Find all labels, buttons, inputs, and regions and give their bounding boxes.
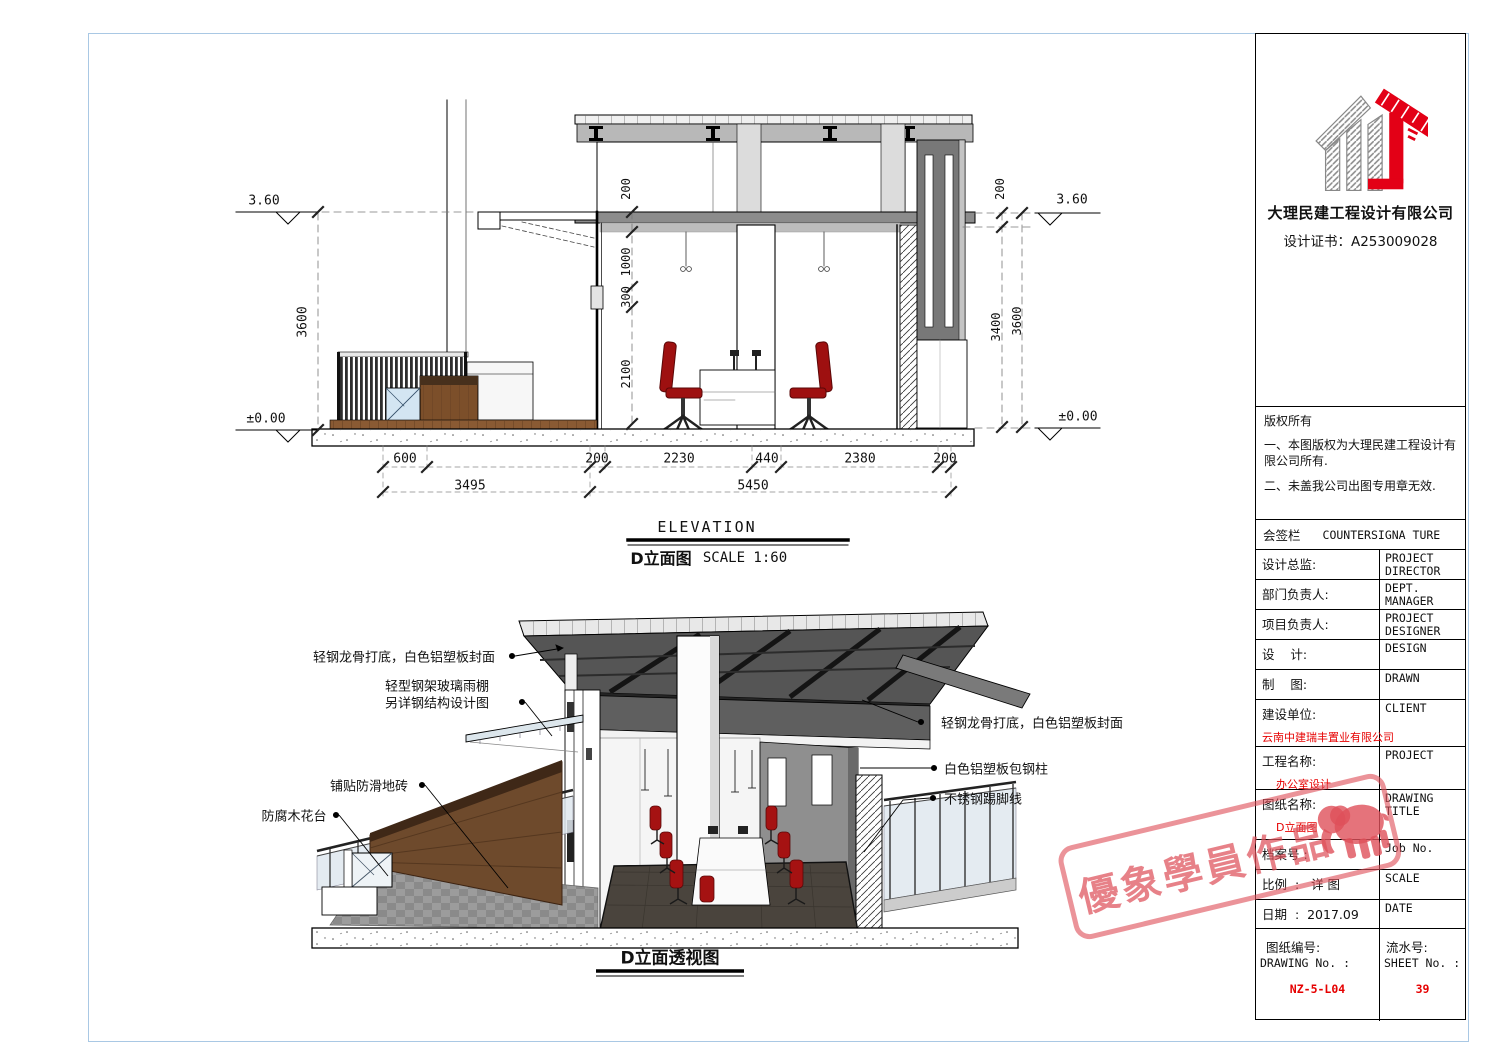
dim-2230: 2230: [663, 452, 694, 467]
table-row: 图纸名称:D立面图 DRAWING TITLE: [1256, 789, 1465, 839]
dim-5450: 5450: [737, 479, 768, 494]
table-row: 工程名称:办公室设计 PROJECT: [1256, 746, 1465, 789]
row-label: 项目负责人:: [1256, 610, 1380, 639]
office-chair: [789, 342, 833, 433]
level-label-ground-right: ±0.00: [1058, 410, 1097, 425]
row-label-en: DATE: [1380, 900, 1465, 928]
row-label: 图纸名称:D立面图: [1256, 790, 1380, 839]
table-row: 比例 : 详 图 SCALE: [1256, 869, 1465, 899]
dim-3600-right: 3600: [1010, 307, 1024, 336]
row-label: 比例 : 详 图: [1256, 870, 1380, 899]
dim-3400: 3400: [989, 313, 1003, 342]
perspective-title: D立面透视图: [620, 944, 719, 969]
sheet-no-cn: 流水号:: [1380, 937, 1465, 956]
copyright-section: 版权所有 一、本图版权为大理民建工程设计有限公司所有. 二、未盖我公司出图专用章…: [1256, 406, 1465, 519]
dim-600: 600: [393, 452, 416, 467]
dim-200-right: 200: [993, 178, 1007, 200]
row-label: 部门负责人:: [1256, 580, 1380, 609]
copyright-title: 版权所有: [1264, 413, 1457, 429]
drawing-sheet: 3.60 3.60 ±0.00 ±0.00 3600 200 1000 300 …: [0, 0, 1500, 1061]
dim-200-b: 200: [933, 452, 956, 467]
drawing-title-value: D立面图: [1276, 819, 1379, 835]
row-label-en: SCALE: [1380, 870, 1465, 899]
drawing-no-en: DRAWING No. :: [1256, 956, 1379, 970]
row-label: 设 计:: [1256, 640, 1380, 669]
company-logo: [1308, 82, 1428, 194]
row-label: 制 图:: [1256, 670, 1380, 699]
dim-440: 440: [755, 452, 778, 467]
elevation-scale: SCALE 1:60: [703, 550, 787, 566]
row-label-en: DEPT. MANAGER: [1380, 580, 1465, 609]
row-label: 设计总监:: [1256, 550, 1380, 579]
level-label-top-right: 3.60: [1056, 193, 1087, 208]
dim-2100: 2100: [619, 360, 633, 389]
table-row: 日期 : 2017.09 DATE: [1256, 899, 1465, 928]
sheet-no-value: 39: [1380, 982, 1465, 996]
office-chair: [659, 342, 703, 433]
drawing-no-value: NZ-5-L04: [1256, 982, 1379, 996]
label-floor-tile: 铺贴防滑地砖: [330, 776, 408, 795]
client-name: 云南中建瑞丰置业有限公司: [1262, 729, 1379, 745]
row-label-en: DRAWING TITLE: [1380, 790, 1465, 839]
drawing-no-cn: 图纸编号:: [1256, 937, 1379, 956]
row-label-en: PROJECT DIRECTOR: [1380, 550, 1465, 579]
table-row: 建设单位:云南中建瑞丰置业有限公司 CLIENT: [1256, 699, 1465, 746]
row-label: 工程名称:办公室设计: [1256, 747, 1380, 789]
table-row: 制 图: DRAWN: [1256, 669, 1465, 699]
label-column-clad: 白色铝塑板包钢柱: [944, 759, 1048, 778]
level-label-top-left: 3.60: [248, 194, 279, 209]
row-label-en: CLIENT: [1380, 700, 1465, 746]
label-roof-right: 轻钢龙骨打底，白色铝塑板封面: [941, 713, 1123, 732]
row-label-en: PROJECT DESIGNER: [1380, 610, 1465, 639]
row-label: 建设单位:云南中建瑞丰置业有限公司: [1256, 700, 1380, 746]
label-planter: 防腐木花台: [261, 806, 326, 825]
drawing-number-row: 图纸编号: DRAWING No. : NZ-5-L04 流水号: SHEET …: [1256, 928, 1465, 1021]
elevation-title-en: ELEVATION: [657, 518, 756, 536]
table-row: 设计总监: PROJECT DIRECTOR: [1256, 549, 1465, 579]
copyright-line-2: 二、未盖我公司出图专用章无效.: [1264, 478, 1457, 494]
dim-200-inner: 200: [619, 178, 633, 200]
label-canopy-2: 另详钢结构设计图: [385, 693, 489, 712]
row-label: 日期 : 2017.09: [1256, 900, 1380, 928]
certificate-number: 设计证书：A253009028: [1256, 230, 1465, 250]
level-label-ground-left: ±0.00: [246, 412, 285, 427]
table-row: 项目负责人: PROJECT DESIGNER: [1256, 609, 1465, 639]
row-label-en: Job No.: [1380, 840, 1465, 869]
row-label: 档案号 :: [1256, 840, 1380, 869]
dim-3495: 3495: [454, 479, 485, 494]
dim-300: 300: [619, 286, 633, 308]
countersign-row: 会签栏 COUNTERSIGNA TURE: [1256, 519, 1465, 549]
elevation-drawing: [236, 100, 1100, 545]
countersign-en: COUNTERSIGNA TURE: [1323, 528, 1441, 542]
title-block: 大理民建工程设计有限公司 设计证书：A253009028 版权所有 一、本图版权…: [1255, 33, 1466, 1020]
dim-2380: 2380: [844, 452, 875, 467]
row-label-en: DRAWN: [1380, 670, 1465, 699]
countersign-cn: 会签栏: [1256, 525, 1301, 544]
perspective-drawing: [312, 612, 1030, 976]
company-name: 大理民建工程设计有限公司: [1256, 202, 1465, 223]
dim-3600-left: 3600: [296, 306, 311, 337]
label-skirting: 不锈钢踢脚线: [944, 789, 1022, 808]
copyright-line-1: 一、本图版权为大理民建工程设计有限公司所有.: [1264, 437, 1457, 469]
row-label-en: DESIGN: [1380, 640, 1465, 669]
elevation-title-cn: D立面图: [630, 545, 691, 569]
table-row: 档案号 : Job No.: [1256, 839, 1465, 869]
table-row: 设 计: DESIGN: [1256, 639, 1465, 669]
table-row: 部门负责人: DEPT. MANAGER: [1256, 579, 1465, 609]
row-label-en: PROJECT: [1380, 747, 1465, 789]
sheet-no-en: SHEET No. :: [1380, 956, 1465, 970]
label-roof-left: 轻钢龙骨打底，白色铝塑板封面: [313, 647, 495, 666]
dim-1000: 1000: [619, 248, 633, 277]
dim-200-a: 200: [585, 452, 608, 467]
